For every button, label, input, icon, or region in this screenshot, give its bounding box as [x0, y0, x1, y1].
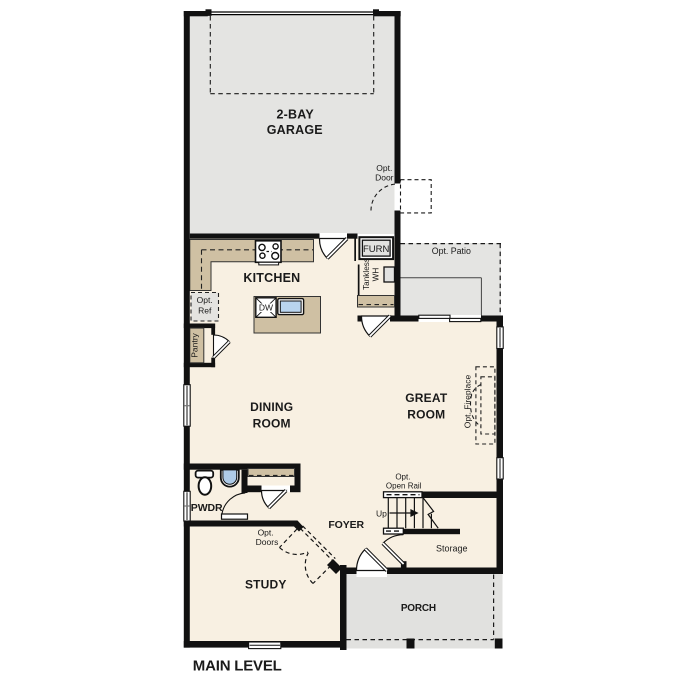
svg-text:Opt.: Opt.	[376, 163, 392, 173]
svg-text:Storage: Storage	[436, 544, 468, 554]
svg-text:ROOM: ROOM	[253, 417, 291, 431]
svg-text:DW: DW	[259, 303, 273, 313]
svg-text:KITCHEN: KITCHEN	[243, 271, 300, 285]
svg-text:DINING: DINING	[250, 400, 293, 414]
svg-text:Pantry: Pantry	[189, 332, 199, 357]
svg-text:WH: WH	[372, 268, 381, 282]
svg-text:Opt. Patio: Opt. Patio	[432, 246, 471, 256]
svg-text:Tankless: Tankless	[362, 258, 371, 290]
svg-text:Door: Door	[375, 172, 394, 182]
svg-text:STUDY: STUDY	[245, 577, 287, 591]
svg-text:Opt. Fireplace: Opt. Fireplace	[463, 375, 473, 429]
svg-text:FOYER: FOYER	[328, 519, 364, 531]
svg-text:Opt.: Opt.	[197, 295, 213, 305]
svg-text:PWDR: PWDR	[191, 502, 223, 514]
svg-text:Open Rail: Open Rail	[386, 481, 422, 490]
svg-text:Ref: Ref	[198, 305, 212, 315]
svg-text:PORCH: PORCH	[401, 603, 436, 614]
svg-text:MAIN LEVEL: MAIN LEVEL	[193, 658, 282, 675]
svg-text:GARAGE: GARAGE	[267, 123, 323, 137]
svg-text:Up: Up	[376, 509, 387, 519]
svg-text:ROOM: ROOM	[407, 408, 445, 422]
svg-text:GREAT: GREAT	[405, 391, 448, 405]
svg-text:Doors: Doors	[256, 537, 279, 547]
svg-text:FURN: FURN	[363, 244, 390, 255]
svg-text:Opt.: Opt.	[395, 472, 410, 481]
svg-text:2-BAY: 2-BAY	[277, 108, 315, 122]
svg-text:Opt.: Opt.	[258, 527, 274, 537]
